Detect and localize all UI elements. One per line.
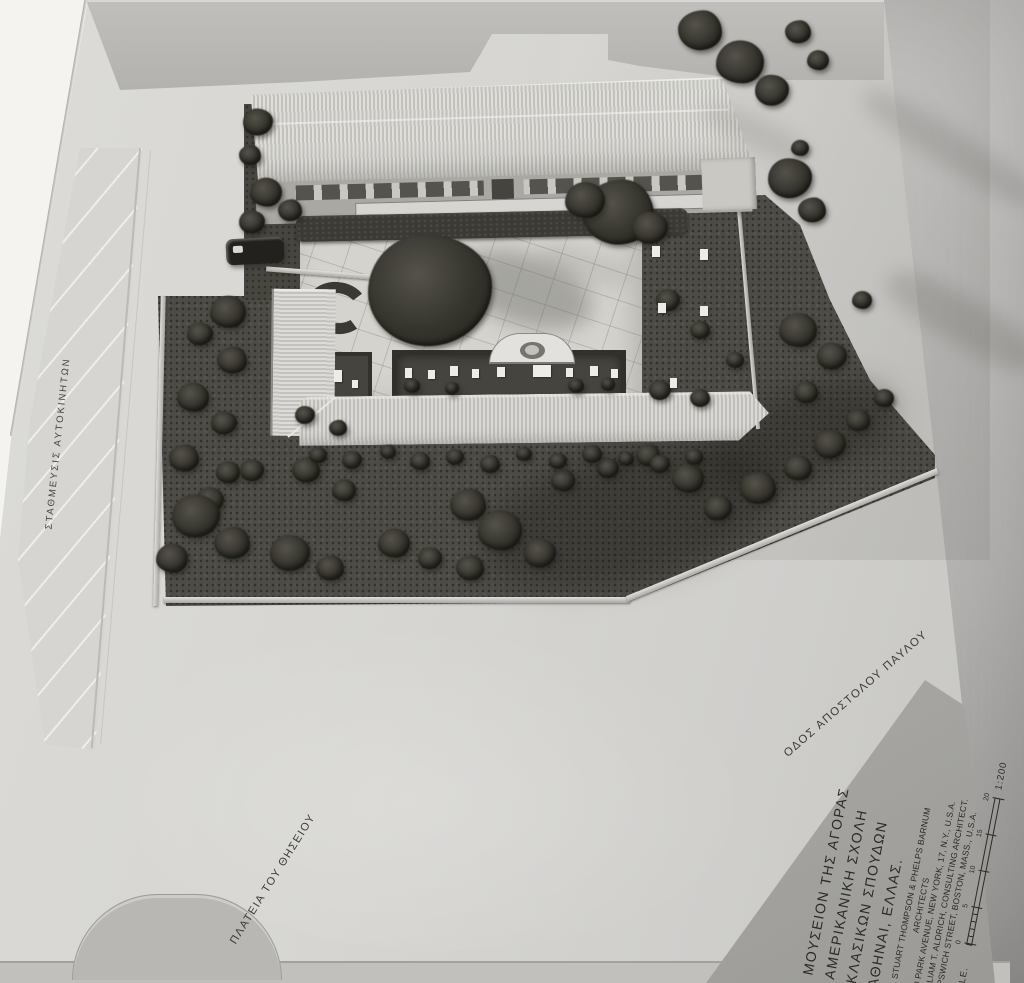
statue: [590, 366, 598, 376]
model-tree: [214, 527, 250, 559]
statue: [658, 303, 666, 313]
model-tree: [568, 379, 584, 393]
statue: [700, 306, 708, 316]
statue: [352, 380, 358, 388]
model-tree: [807, 50, 829, 70]
statue: [334, 370, 342, 382]
model-tree: [332, 479, 356, 501]
statue: [428, 370, 435, 379]
model-tree: [177, 383, 209, 412]
model-tree: [410, 452, 430, 470]
model-tree: [216, 461, 240, 483]
model-tree: [690, 389, 710, 407]
model-tree: [278, 199, 302, 221]
model-tree: [726, 352, 744, 368]
scale-tick: 15: [975, 829, 983, 838]
statue: [533, 365, 551, 377]
model-tree: [380, 445, 396, 459]
east-gable-wall: [701, 157, 757, 211]
model-tree: [456, 555, 484, 580]
model-tree: [601, 378, 615, 391]
model-car: [225, 237, 284, 266]
statue: [670, 378, 677, 388]
statue: [652, 246, 660, 257]
model-tree: [316, 555, 344, 580]
statue: [497, 367, 505, 377]
statue: [405, 368, 412, 378]
scale-label: SCALE.: [952, 966, 969, 983]
model-tree: [450, 489, 486, 521]
model-tree: [404, 379, 420, 393]
model-tree: [798, 197, 826, 222]
model-tree: [649, 380, 671, 400]
scale-tick: 5: [962, 903, 970, 908]
model-tree: [156, 544, 188, 573]
model-tree: [768, 158, 812, 198]
scale-tick: 0: [955, 940, 963, 945]
model-tree: [516, 447, 532, 461]
model-tree: [210, 296, 246, 328]
model-tree: [685, 449, 703, 465]
model-tree: [551, 469, 575, 491]
model-tree: [740, 472, 776, 504]
scale-bar-subdivisions: [967, 907, 978, 944]
model-tree: [309, 447, 327, 463]
model-tree: [678, 10, 722, 50]
model-tree: [445, 382, 459, 395]
scale-tick: 10: [968, 865, 976, 874]
model-tree: [378, 529, 410, 558]
model-tree: [329, 420, 347, 436]
model-tree: [618, 452, 634, 466]
car-windshield: [233, 246, 243, 254]
model-tree: [716, 40, 764, 83]
model-tree: [480, 455, 500, 473]
model-tree: [785, 20, 811, 43]
model-tree: [565, 182, 605, 218]
fountain-basin-center: [525, 345, 539, 355]
model-tree: [690, 321, 710, 339]
model-tree: [852, 291, 872, 309]
model-tree: [169, 445, 199, 472]
model-tree: [755, 75, 789, 106]
scale-ratio: 1:200: [993, 761, 1009, 791]
model-tree: [239, 145, 261, 165]
model-tree: [779, 313, 817, 347]
model-tree: [418, 547, 442, 569]
statue: [566, 368, 573, 377]
garden-wall-south: [164, 597, 630, 603]
model-tree: [672, 464, 704, 493]
statue: [700, 249, 708, 260]
statue: [450, 366, 458, 376]
model-tree: [784, 455, 812, 480]
model-tree: [217, 347, 247, 374]
statue: [611, 369, 618, 378]
model-tree: [478, 510, 522, 550]
scale-tick: 20: [982, 792, 990, 801]
statue: [472, 369, 479, 378]
photo-of-architectural-model: ΣΤΑΘΜΕΥΣΙΣ ΑΥΤΟΚΙΝΗΤΩΝ ΠΛΑΤΕΙΑ ΤΟΥ ΘΗΣΕΙ…: [0, 0, 1024, 983]
model-tree: [240, 459, 264, 481]
model-tree: [794, 381, 818, 403]
model-tree: [597, 458, 619, 478]
model-tree: [582, 445, 602, 463]
model-tree: [250, 178, 282, 207]
model-tree: [874, 389, 894, 407]
